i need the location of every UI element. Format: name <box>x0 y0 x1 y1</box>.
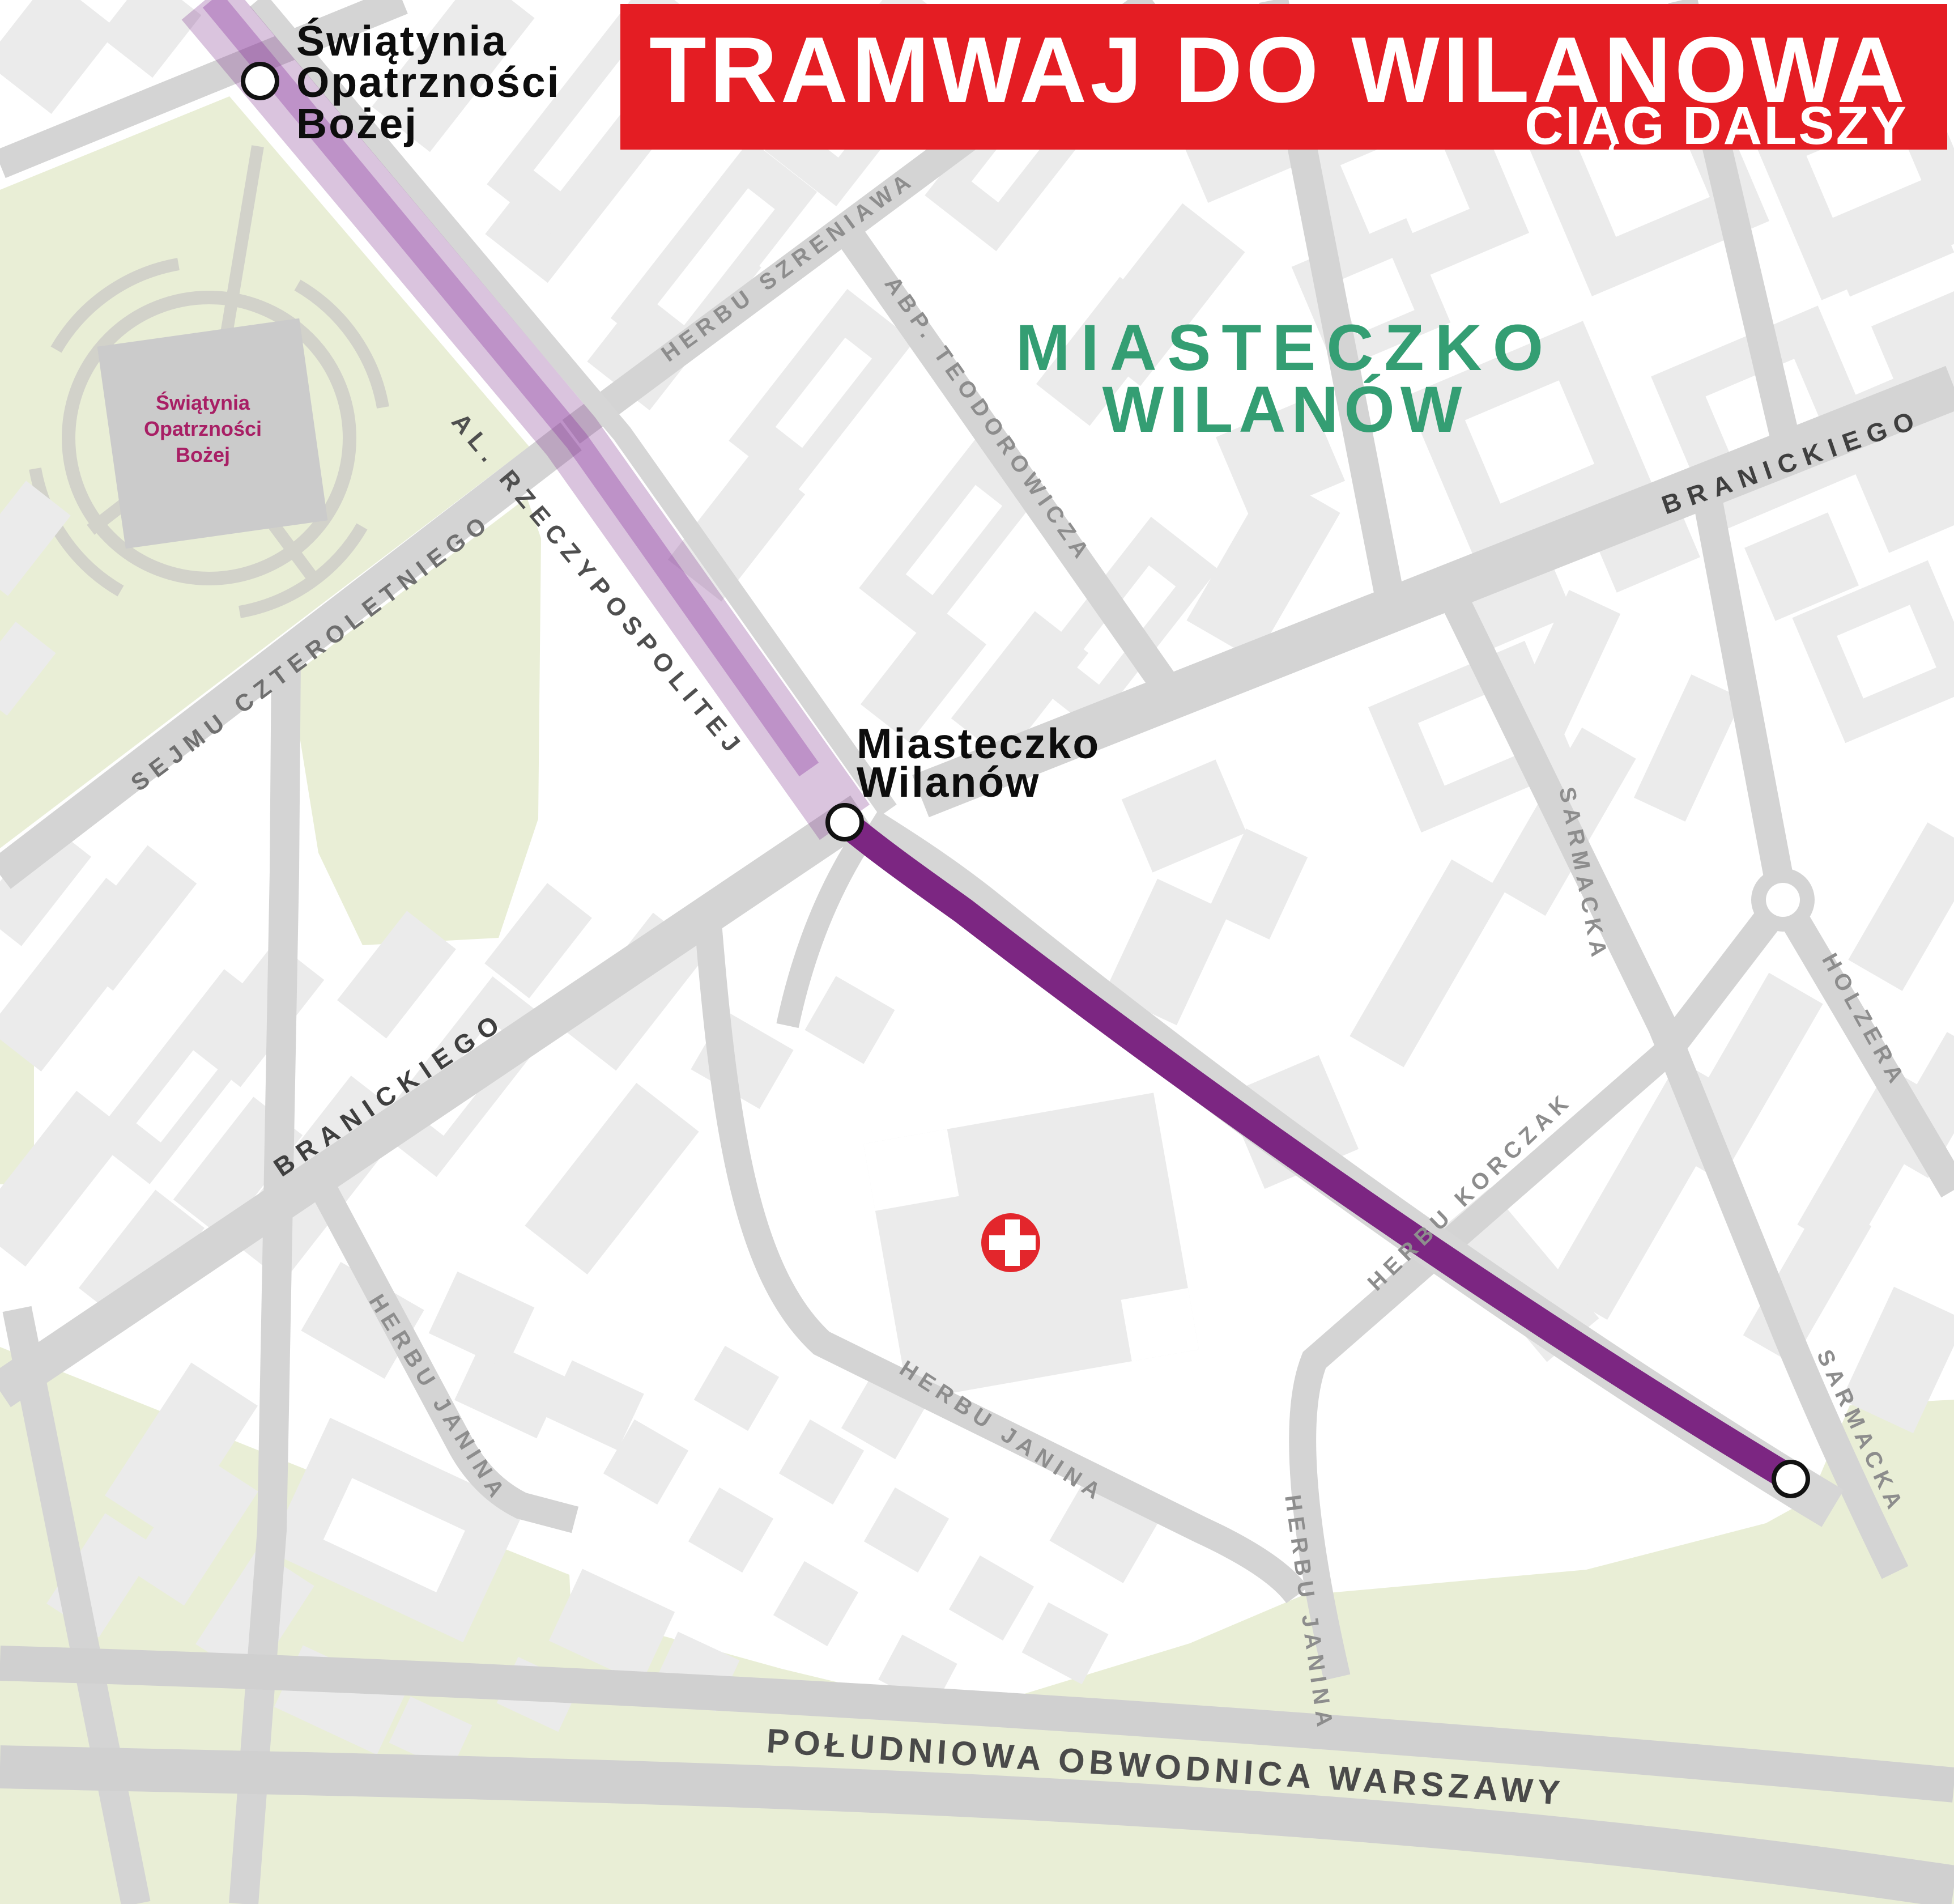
svg-text:Świątynia: Świątynia <box>156 390 250 414</box>
svg-text:Bożej: Bożej <box>176 443 230 466</box>
svg-text:Wilanów: Wilanów <box>857 758 1040 806</box>
svg-text:Bożej: Bożej <box>296 100 418 147</box>
svg-text:WILANÓW: WILANÓW <box>1102 373 1468 446</box>
svg-text:CIĄG DALSZY: CIĄG DALSZY <box>1525 96 1908 156</box>
svg-text:Świątynia: Świątynia <box>296 17 508 65</box>
svg-text:Opatrzności: Opatrzności <box>144 417 262 440</box>
svg-text:Opatrzności: Opatrzności <box>296 58 560 106</box>
